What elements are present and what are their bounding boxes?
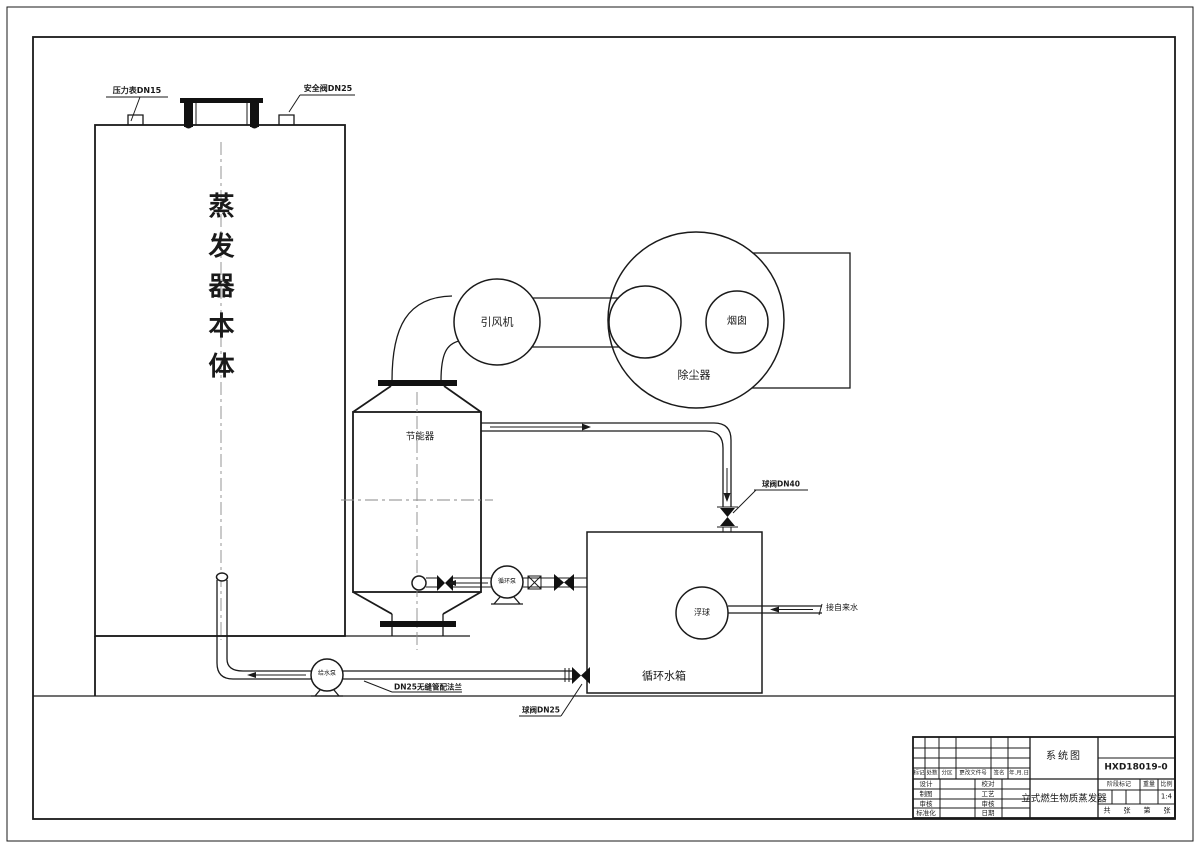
sign-date: 日期 — [982, 810, 995, 817]
riser-outlet — [217, 573, 228, 581]
sign-design: 设计 — [920, 781, 933, 788]
rev-header-date: 年.月.日 — [1009, 771, 1029, 777]
flow-arrow-down — [724, 493, 731, 502]
circulation-pump-label: 循环泵 — [498, 579, 516, 585]
circulating-tank-label: 循环水箱 — [642, 671, 686, 682]
chimney-label: 烟囱 — [727, 317, 747, 327]
sign-approve: 审核 — [982, 800, 995, 807]
title-block-view-name: 系统图 — [1046, 752, 1082, 762]
evaporator-vessel — [95, 95, 470, 696]
shutoff-valve-symbol — [554, 574, 574, 591]
dust-inlet-circle — [609, 286, 681, 358]
feed-pump-symbol — [311, 659, 343, 696]
sign-process: 工艺 — [982, 791, 995, 798]
seamless-pipe-label: DN25无缝管配法兰 — [394, 683, 462, 691]
economizer-bottom-flange — [380, 621, 456, 627]
inner-frame — [33, 37, 1175, 819]
safety-valve-label: 安全阀DN25 — [304, 85, 352, 93]
outer-border — [7, 7, 1193, 841]
flow-arrow-left — [770, 607, 779, 613]
dust-collector-label: 除尘器 — [678, 370, 711, 381]
scale-value: 1:4 — [1161, 794, 1172, 801]
sheet-unit-label: 张 — [1124, 808, 1131, 815]
sheet-unit2-label: 张 — [1164, 808, 1171, 815]
ball-valve-dn40-label: 球阀DN40 — [762, 480, 800, 488]
feed-pump-label: 给水泵 — [318, 671, 336, 677]
tap-water-label: 接自来水 — [826, 604, 858, 612]
ball-valve-dn25-label: 球阀DN25 — [522, 706, 560, 714]
sheet-number-label: 第 — [1144, 808, 1151, 815]
economizer-vessel — [341, 380, 493, 650]
rev-header-docno: 更改文件号 — [959, 771, 987, 777]
pressure-gauge-stub — [128, 115, 143, 125]
scale-label: 比例 — [1160, 782, 1172, 788]
weight-label: 重量 — [1143, 782, 1155, 788]
line-work — [0, 0, 1200, 848]
title-block — [913, 737, 1175, 818]
stage-mark-label: 阶段标记 — [1107, 782, 1131, 788]
flow-arrow-right — [582, 424, 591, 431]
induced-draft-fan-label: 引风机 — [481, 317, 514, 328]
circulation-pump-line — [412, 566, 587, 604]
sign-review: 审核 — [920, 800, 933, 807]
flue-gas-train — [392, 232, 850, 408]
sign-draft: 制图 — [920, 791, 933, 798]
title-block-drawing-title: 立式燃生物质蒸发器 — [1021, 794, 1107, 804]
elbow-duct — [392, 296, 452, 381]
economizer-label: 节能器 — [406, 432, 435, 442]
sign-standardization: 标准化 — [916, 810, 936, 817]
evaporator-body-label: 蒸发器本体 — [206, 192, 232, 392]
float-ball-label: 浮球 — [694, 609, 710, 617]
sign-proofread: 校对 — [982, 781, 995, 788]
economizer-top-flange — [378, 380, 457, 386]
rev-header-zone: 分区 — [941, 771, 952, 777]
manhole-flange — [180, 98, 263, 129]
rev-header-signature: 签名 — [993, 771, 1004, 777]
safety-valve-leader — [289, 95, 355, 112]
feed-water-line — [217, 573, 591, 716]
pressure-gauge-label: 压力表DN15 — [113, 87, 161, 95]
rev-header-count: 处数 — [926, 771, 937, 777]
pressure-gauge-leader — [106, 97, 168, 121]
cad-sheet: 压力表DN15 安全阀DN25 蒸发器本体 引风机 烟囱 除尘器 节能器 球阀D… — [0, 0, 1200, 848]
circulation-pump-symbol — [491, 566, 523, 604]
flow-arrow-left — [247, 672, 256, 678]
elbow-duct-inner — [441, 341, 459, 381]
sheet-total-label: 共 — [1104, 808, 1111, 815]
rev-header-mark: 标记 — [913, 771, 924, 777]
drain-fitting-circle — [412, 576, 426, 590]
title-block-drawing-number: HXD18019-0 — [1104, 764, 1167, 773]
economizer-outlet-pipe — [481, 423, 808, 532]
ball-valve-dn40-leader — [733, 490, 808, 513]
safety-valve-stub — [279, 115, 294, 125]
